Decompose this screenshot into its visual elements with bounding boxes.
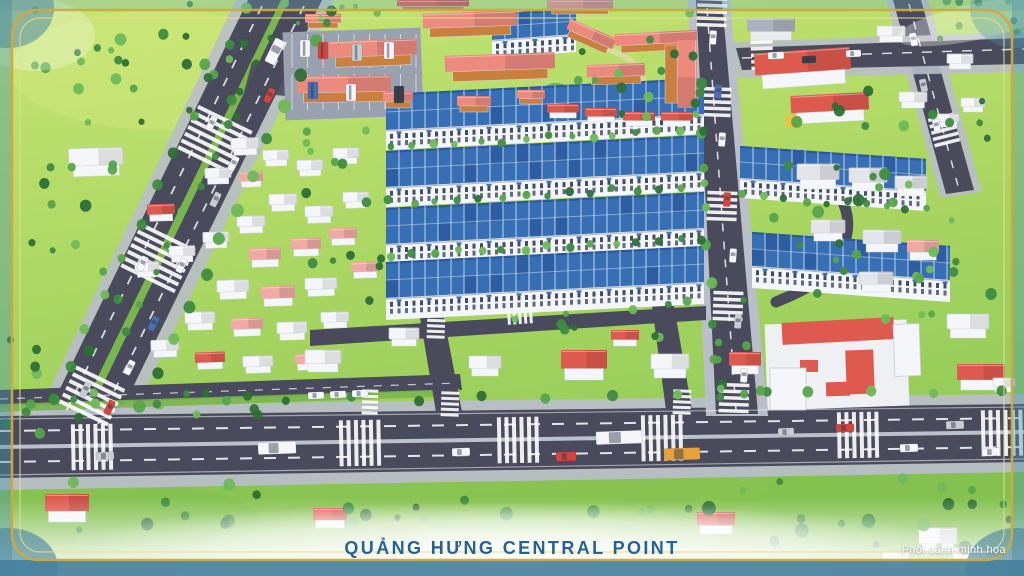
render-image: QUẢNG HƯNG CENTRAL POINT Phối cảnh minh … xyxy=(0,0,1024,576)
project-title: QUẢNG HƯNG CENTRAL POINT xyxy=(0,538,1024,559)
aerial-scene-svg xyxy=(0,0,1024,576)
render-disclaimer: Phối cảnh minh họa xyxy=(902,544,1006,556)
